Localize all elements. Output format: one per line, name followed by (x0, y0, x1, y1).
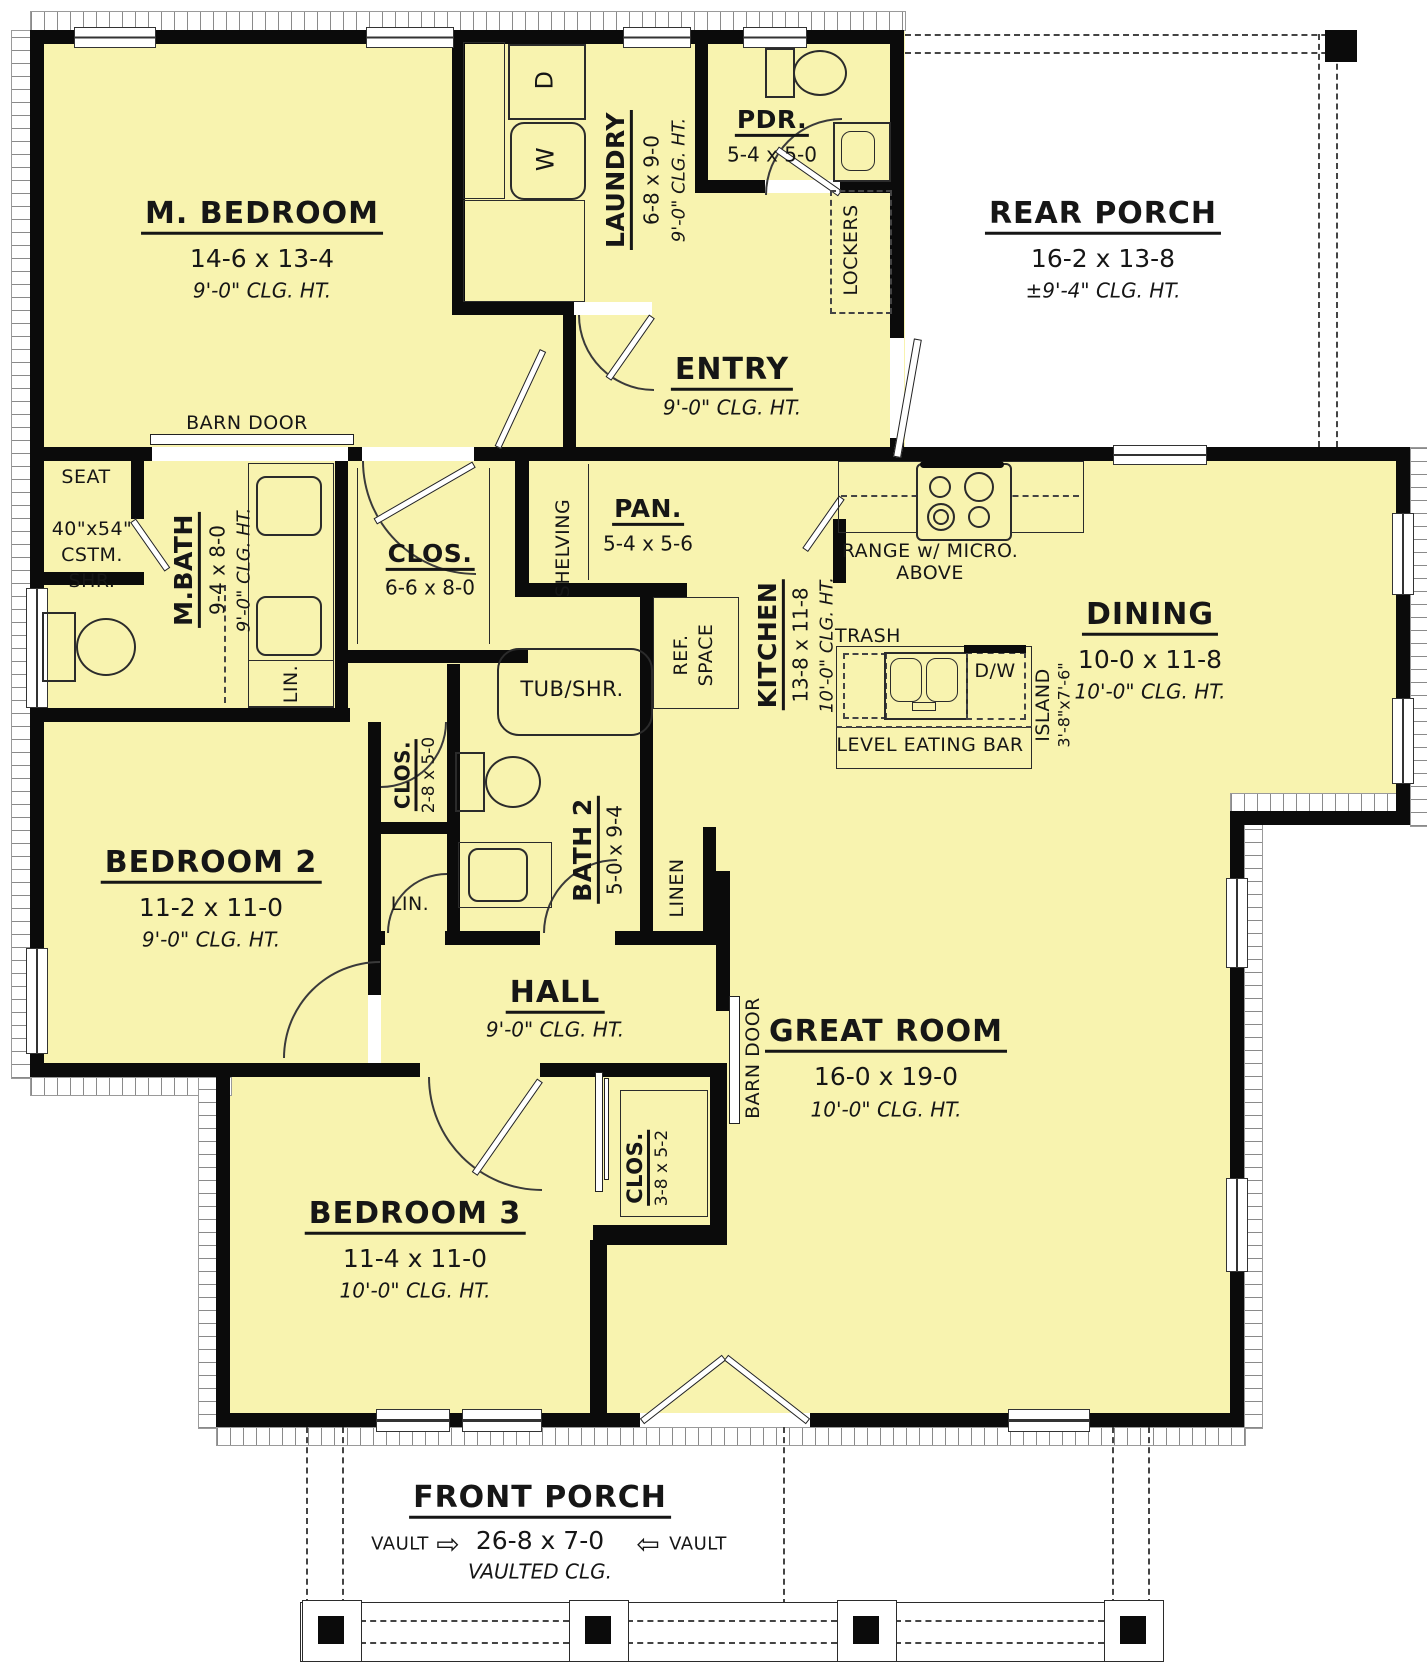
window (743, 27, 807, 48)
wall (695, 30, 708, 187)
mbath-sink-2 (256, 596, 322, 656)
window (1226, 878, 1248, 968)
wall (695, 180, 765, 193)
room-dims-bath2: 5-0 x 9-4 (605, 805, 626, 895)
pdr-sink-basin (841, 131, 875, 171)
door-opening (362, 447, 474, 461)
toilet-bowl (793, 50, 847, 96)
laundry-counter (463, 42, 505, 199)
lin-label-hall: LIN. (391, 895, 429, 915)
wall (30, 708, 350, 722)
wall (593, 1225, 727, 1245)
eating-bar-label: LEVEL EATING BAR (836, 736, 1023, 756)
room-title-bath2: BATH 2 (570, 796, 600, 904)
room-title-m-bath: M.BATH (171, 512, 201, 628)
wall (216, 1063, 230, 1427)
room-title-laundry: LAUNDRY (603, 110, 633, 250)
room-title-clos2: CLOS. (393, 739, 418, 811)
wall (540, 1063, 727, 1077)
wall (30, 30, 44, 1077)
porch-column-core (318, 1616, 344, 1644)
ref-space-label-2: SPACE (697, 624, 717, 687)
wall (710, 1063, 727, 1245)
linen-label: LINEN (668, 858, 688, 917)
burner (927, 503, 955, 531)
pantry-shelf-line (588, 464, 590, 580)
porch-dashed-edge (1112, 1427, 1114, 1605)
room-title-entry: ENTRY (671, 354, 793, 391)
wall (368, 822, 460, 834)
window (1392, 698, 1414, 784)
closet-door (595, 1072, 603, 1192)
wall (131, 461, 144, 519)
wall (640, 597, 653, 945)
room-title-dining: DINING (1082, 599, 1218, 636)
railing-dashed (360, 1620, 569, 1622)
exterior-hatch (198, 1077, 217, 1429)
wall (703, 827, 716, 945)
lin-label-mbath: LIN. (282, 665, 302, 703)
porch-dashed-edge (342, 1427, 344, 1605)
vault-right-arrow-icon: ⇨ (436, 1529, 459, 1558)
room-dims-m-bath: 9-4 x 8-0 (208, 525, 229, 615)
washer-label: W (533, 147, 558, 171)
room-dims-pdr: 5-4 x 5-0 (727, 145, 817, 166)
sink-basin (890, 658, 922, 702)
burner (968, 506, 990, 528)
room-dims-bedroom2: 11-2 x 11-0 (139, 895, 283, 921)
porch-column-core (853, 1616, 879, 1644)
room-title-m-clos: CLOS. (386, 541, 475, 571)
bath2-sink (468, 848, 528, 902)
room-clg-front-porch: VAULTED CLG. (468, 1562, 612, 1583)
room-clg-m-bedroom: 9'-0" CLG. HT. (193, 281, 331, 302)
door-opening (152, 447, 348, 461)
window (376, 1409, 450, 1432)
room-title-m-bedroom: M. BEDROOM (141, 198, 383, 235)
wall (368, 722, 381, 995)
floor-plan: D W (0, 0, 1427, 1676)
room-title-pdr: PDR. (735, 107, 809, 137)
room-title-great-room: GREAT ROOM (765, 1016, 1007, 1053)
room-clg-bedroom3: 10'-0" CLG. HT. (339, 1281, 490, 1302)
porch-column-core (1120, 1616, 1146, 1644)
sink-basin (926, 658, 958, 702)
seat-label: SEAT (61, 468, 110, 488)
toilet-tank (765, 48, 795, 98)
exterior-hatch (1230, 793, 1412, 812)
vault-left-label: VAULT (371, 1536, 429, 1555)
room-title-pan: PAN. (612, 496, 684, 526)
room-clg-rear-porch: ±9'-4" CLG. HT. (1025, 281, 1180, 302)
room-dims-kitchen: 13-8 x 11-8 (791, 587, 812, 702)
shower-shr-label: SHR. (69, 572, 116, 592)
island-dims-label: 3'-8"x7'-6" (1057, 662, 1074, 747)
window (26, 948, 48, 1054)
floor-great-room (690, 790, 1244, 1427)
window (623, 27, 691, 48)
exterior-hatch (11, 30, 31, 1079)
wall (515, 447, 529, 597)
porch-column-core (585, 1616, 611, 1644)
window (1008, 1409, 1090, 1432)
dw-label: D/W (974, 662, 1015, 682)
exterior-hatch (216, 1427, 1246, 1446)
porch-ridge-line (783, 1427, 785, 1605)
porch-dashed-edge (1318, 34, 1320, 447)
ref-space-label-1: REF. (672, 634, 692, 675)
toilet-tank (455, 752, 485, 812)
room-clg-hall: 9'-0" CLG. HT. (486, 1020, 624, 1041)
room-clg-bedroom2: 9'-0" CLG. HT. (142, 930, 280, 951)
room-dims-bedroom3: 11-4 x 11-0 (343, 1246, 487, 1272)
door-opening (640, 1413, 810, 1427)
room-dims-clos3: 3-8 x 5-2 (654, 1130, 672, 1206)
room-title-hall: HALL (506, 977, 605, 1014)
burner (964, 472, 994, 502)
barn-door-label: BARN DOOR (186, 414, 308, 434)
barn-door-slab (150, 434, 354, 445)
room-dims-pan: 5-4 x 5-6 (603, 534, 693, 555)
railing-dashed (627, 1620, 837, 1622)
closet-shelf-line (357, 468, 359, 644)
porch-railing (300, 1602, 1160, 1662)
wall (335, 461, 348, 722)
shelving-label: SHELVING (554, 499, 574, 597)
floor-rear-porch (905, 30, 1360, 447)
room-dims-dining: 10-0 x 11-8 (1078, 647, 1222, 673)
room-clg-great-room: 10'-0" CLG. HT. (810, 1100, 961, 1121)
range-label-1: RANGE w/ MICRO. (842, 542, 1019, 562)
tub-label: TUB/SHR. (520, 678, 623, 700)
trash-pullout (843, 653, 887, 719)
railing-dashed (895, 1620, 1104, 1622)
room-title-clos3: CLOS. (624, 1130, 650, 1206)
dishwasher-counter-edge (964, 645, 1026, 653)
toilet-bowl (76, 618, 136, 676)
room-dims-front-porch: 26-8 x 7-0 (476, 1528, 604, 1554)
room-clg-dining: 10'-0" CLG. HT. (1074, 682, 1225, 703)
window (74, 27, 156, 48)
room-dims-clos2: 2-8 x 5-0 (421, 737, 439, 813)
lockers-label: LOCKERS (842, 204, 862, 295)
wall (515, 583, 687, 597)
room-clg-entry: 9'-0" CLG. HT. (663, 398, 801, 419)
room-title-bedroom2: BEDROOM 2 (101, 847, 322, 884)
window (1226, 1178, 1248, 1272)
porch-dashed-edge (905, 34, 1357, 36)
wall (1230, 811, 1410, 825)
dryer-label: D (532, 71, 557, 90)
room-dims-laundry: 6-8 x 9-0 (642, 135, 663, 225)
closet-door (604, 1078, 609, 1180)
door-opening (574, 302, 652, 315)
barn-door-slab (729, 996, 740, 1124)
window (366, 27, 454, 48)
vault-right-label: VAULT (669, 1536, 727, 1555)
porch-dashed-edge (306, 1427, 308, 1605)
shower-cstm-label: CSTM. (61, 546, 123, 566)
mbath-sink-1 (256, 476, 322, 536)
wall (576, 447, 838, 461)
wall (445, 931, 540, 945)
wall (590, 1240, 607, 1427)
window (1113, 445, 1207, 465)
room-title-front-porch: FRONT PORCH (409, 1482, 671, 1519)
range-back (920, 461, 1004, 468)
porch-post (1325, 30, 1357, 62)
room-title-bedroom3: BEDROOM 3 (305, 1198, 526, 1235)
room-clg-m-bath: 9'-0" CLG. HT. (236, 508, 255, 632)
laundry-folding-counter (463, 200, 585, 302)
wall (452, 302, 574, 315)
wall (368, 931, 385, 945)
wall (716, 871, 730, 1011)
room-title-rear-porch: REAR PORCH (985, 198, 1221, 235)
sink-faucet (912, 702, 936, 711)
wall (563, 302, 576, 461)
wall (30, 1063, 230, 1077)
room-dims-great-room: 16-0 x 19-0 (814, 1064, 958, 1090)
room-title-kitchen: KITCHEN (755, 580, 785, 711)
barn-door-label: BARN DOOR (744, 997, 764, 1119)
burner (929, 476, 951, 498)
wall (615, 931, 716, 945)
vault-left-arrow-icon: ⇦ (636, 1529, 659, 1558)
toilet-bowl (485, 756, 541, 808)
trash-label: TRASH (835, 627, 901, 647)
island-label: ISLAND (1034, 668, 1054, 742)
wall (30, 447, 152, 461)
room-dims-rear-porch: 16-2 x 13-8 (1031, 246, 1175, 272)
room-dims-m-bedroom: 14-6 x 13-4 (190, 246, 334, 272)
porch-dashed-edge (1336, 34, 1338, 447)
shower-size-label: 40"x54" (52, 520, 133, 540)
range-label-2: ABOVE (896, 564, 964, 584)
window (462, 1409, 542, 1432)
closet-shelf-line (489, 468, 491, 644)
railing-dashed (627, 1642, 837, 1644)
porch-dashed-edge (905, 52, 1357, 54)
toilet-tank (42, 612, 76, 682)
railing-dashed (360, 1642, 569, 1644)
range (916, 463, 1012, 541)
railing-dashed (895, 1642, 1104, 1644)
wall (230, 1063, 420, 1077)
porch-dashed-edge (1148, 1427, 1150, 1605)
room-clg-laundry: 9'-0" CLG. HT. (671, 118, 690, 242)
room-dims-m-clos: 6-6 x 8-0 (385, 578, 475, 599)
window (1392, 513, 1414, 595)
